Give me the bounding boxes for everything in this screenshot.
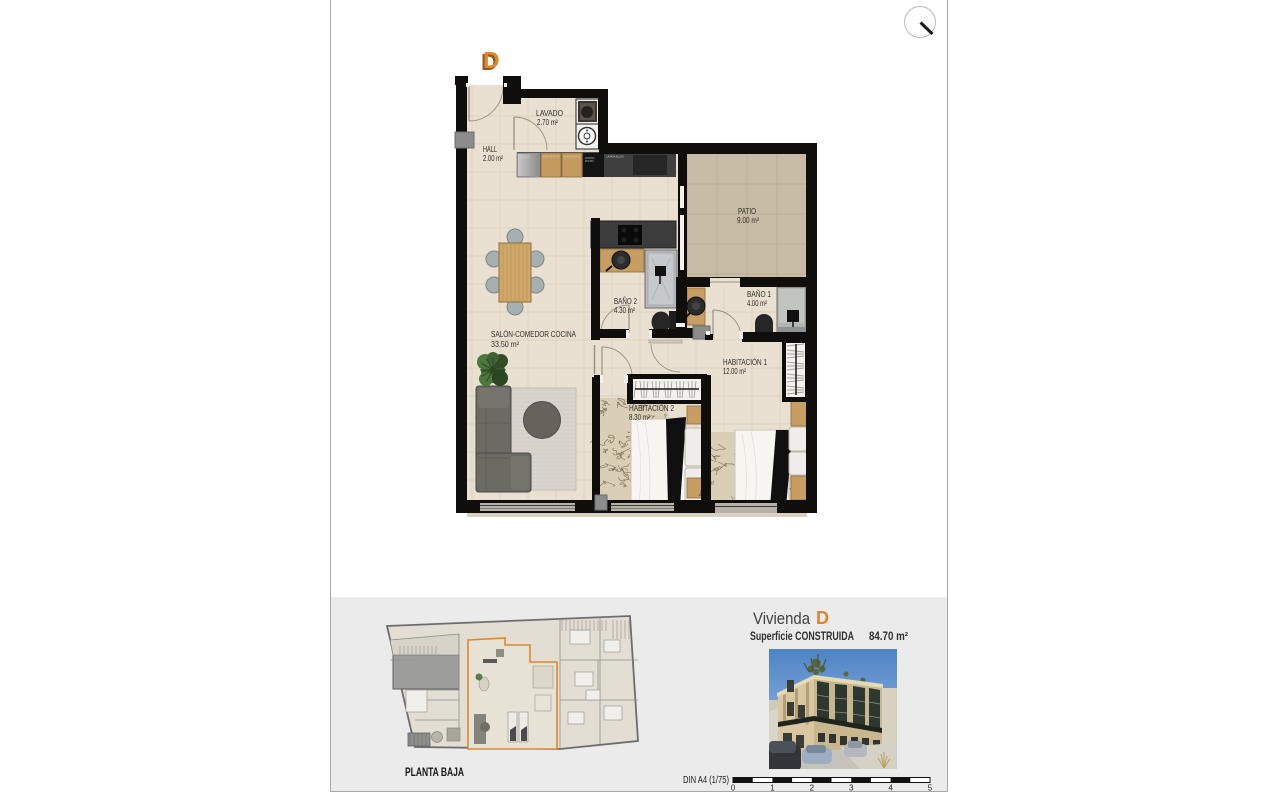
svg-text:2: 2: [810, 784, 815, 793]
svg-text:LAVAVAJILLAS: LAVAVAJILLAS: [606, 155, 624, 159]
svg-text:BAÑO 1: BAÑO 1: [747, 290, 771, 299]
svg-text:4: 4: [888, 784, 893, 793]
svg-text:PLANTA BAJA: PLANTA BAJA: [405, 765, 464, 779]
svg-text:33.50 m²: 33.50 m²: [491, 340, 519, 349]
svg-text:Superficie CONSTRUIDA: Superficie CONSTRUIDA: [750, 631, 854, 643]
svg-text:BAÑO 2: BAÑO 2: [614, 297, 637, 306]
svg-text:D: D: [483, 47, 500, 73]
svg-text:ALMACENAJE: ALMACENAJE: [563, 155, 581, 159]
svg-text:8.30 m²: 8.30 m²: [629, 413, 650, 422]
svg-text:BODEGA: BODEGA: [519, 155, 530, 159]
svg-text:3: 3: [849, 784, 854, 793]
svg-text:SALÓN-COMEDOR COCINA: SALÓN-COMEDOR COCINA: [491, 330, 577, 339]
svg-text:HABITACIÓN 1: HABITACIÓN 1: [723, 358, 767, 367]
svg-text:84.70 m²: 84.70 m²: [869, 631, 908, 643]
svg-text:0: 0: [731, 784, 736, 793]
svg-text:LAVADO: LAVADO: [536, 109, 563, 118]
svg-text:HABITACIÓN 2: HABITACIÓN 2: [629, 404, 674, 413]
svg-text:ALMACENAJE: ALMACENAJE: [542, 155, 560, 159]
svg-text:2.00 m²: 2.00 m²: [483, 154, 503, 163]
svg-text:1: 1: [770, 784, 775, 793]
svg-text:Vivienda: Vivienda: [753, 609, 810, 628]
svg-text:5: 5: [928, 784, 933, 793]
svg-text:4.30 m²: 4.30 m²: [614, 306, 635, 315]
svg-text:4.00 m²: 4.00 m²: [747, 299, 767, 308]
svg-text:HALL: HALL: [483, 145, 497, 154]
svg-text:D: D: [816, 608, 829, 628]
svg-text:12.00 m²: 12.00 m²: [723, 367, 746, 376]
svg-text:DIN A4 (1/75): DIN A4 (1/75): [683, 775, 729, 786]
svg-text:2.70 m²: 2.70 m²: [537, 118, 558, 127]
svg-text:MICRO: MICRO: [585, 159, 594, 163]
svg-text:9.00 m²: 9.00 m²: [737, 216, 759, 225]
svg-text:PATIO: PATIO: [738, 207, 756, 216]
